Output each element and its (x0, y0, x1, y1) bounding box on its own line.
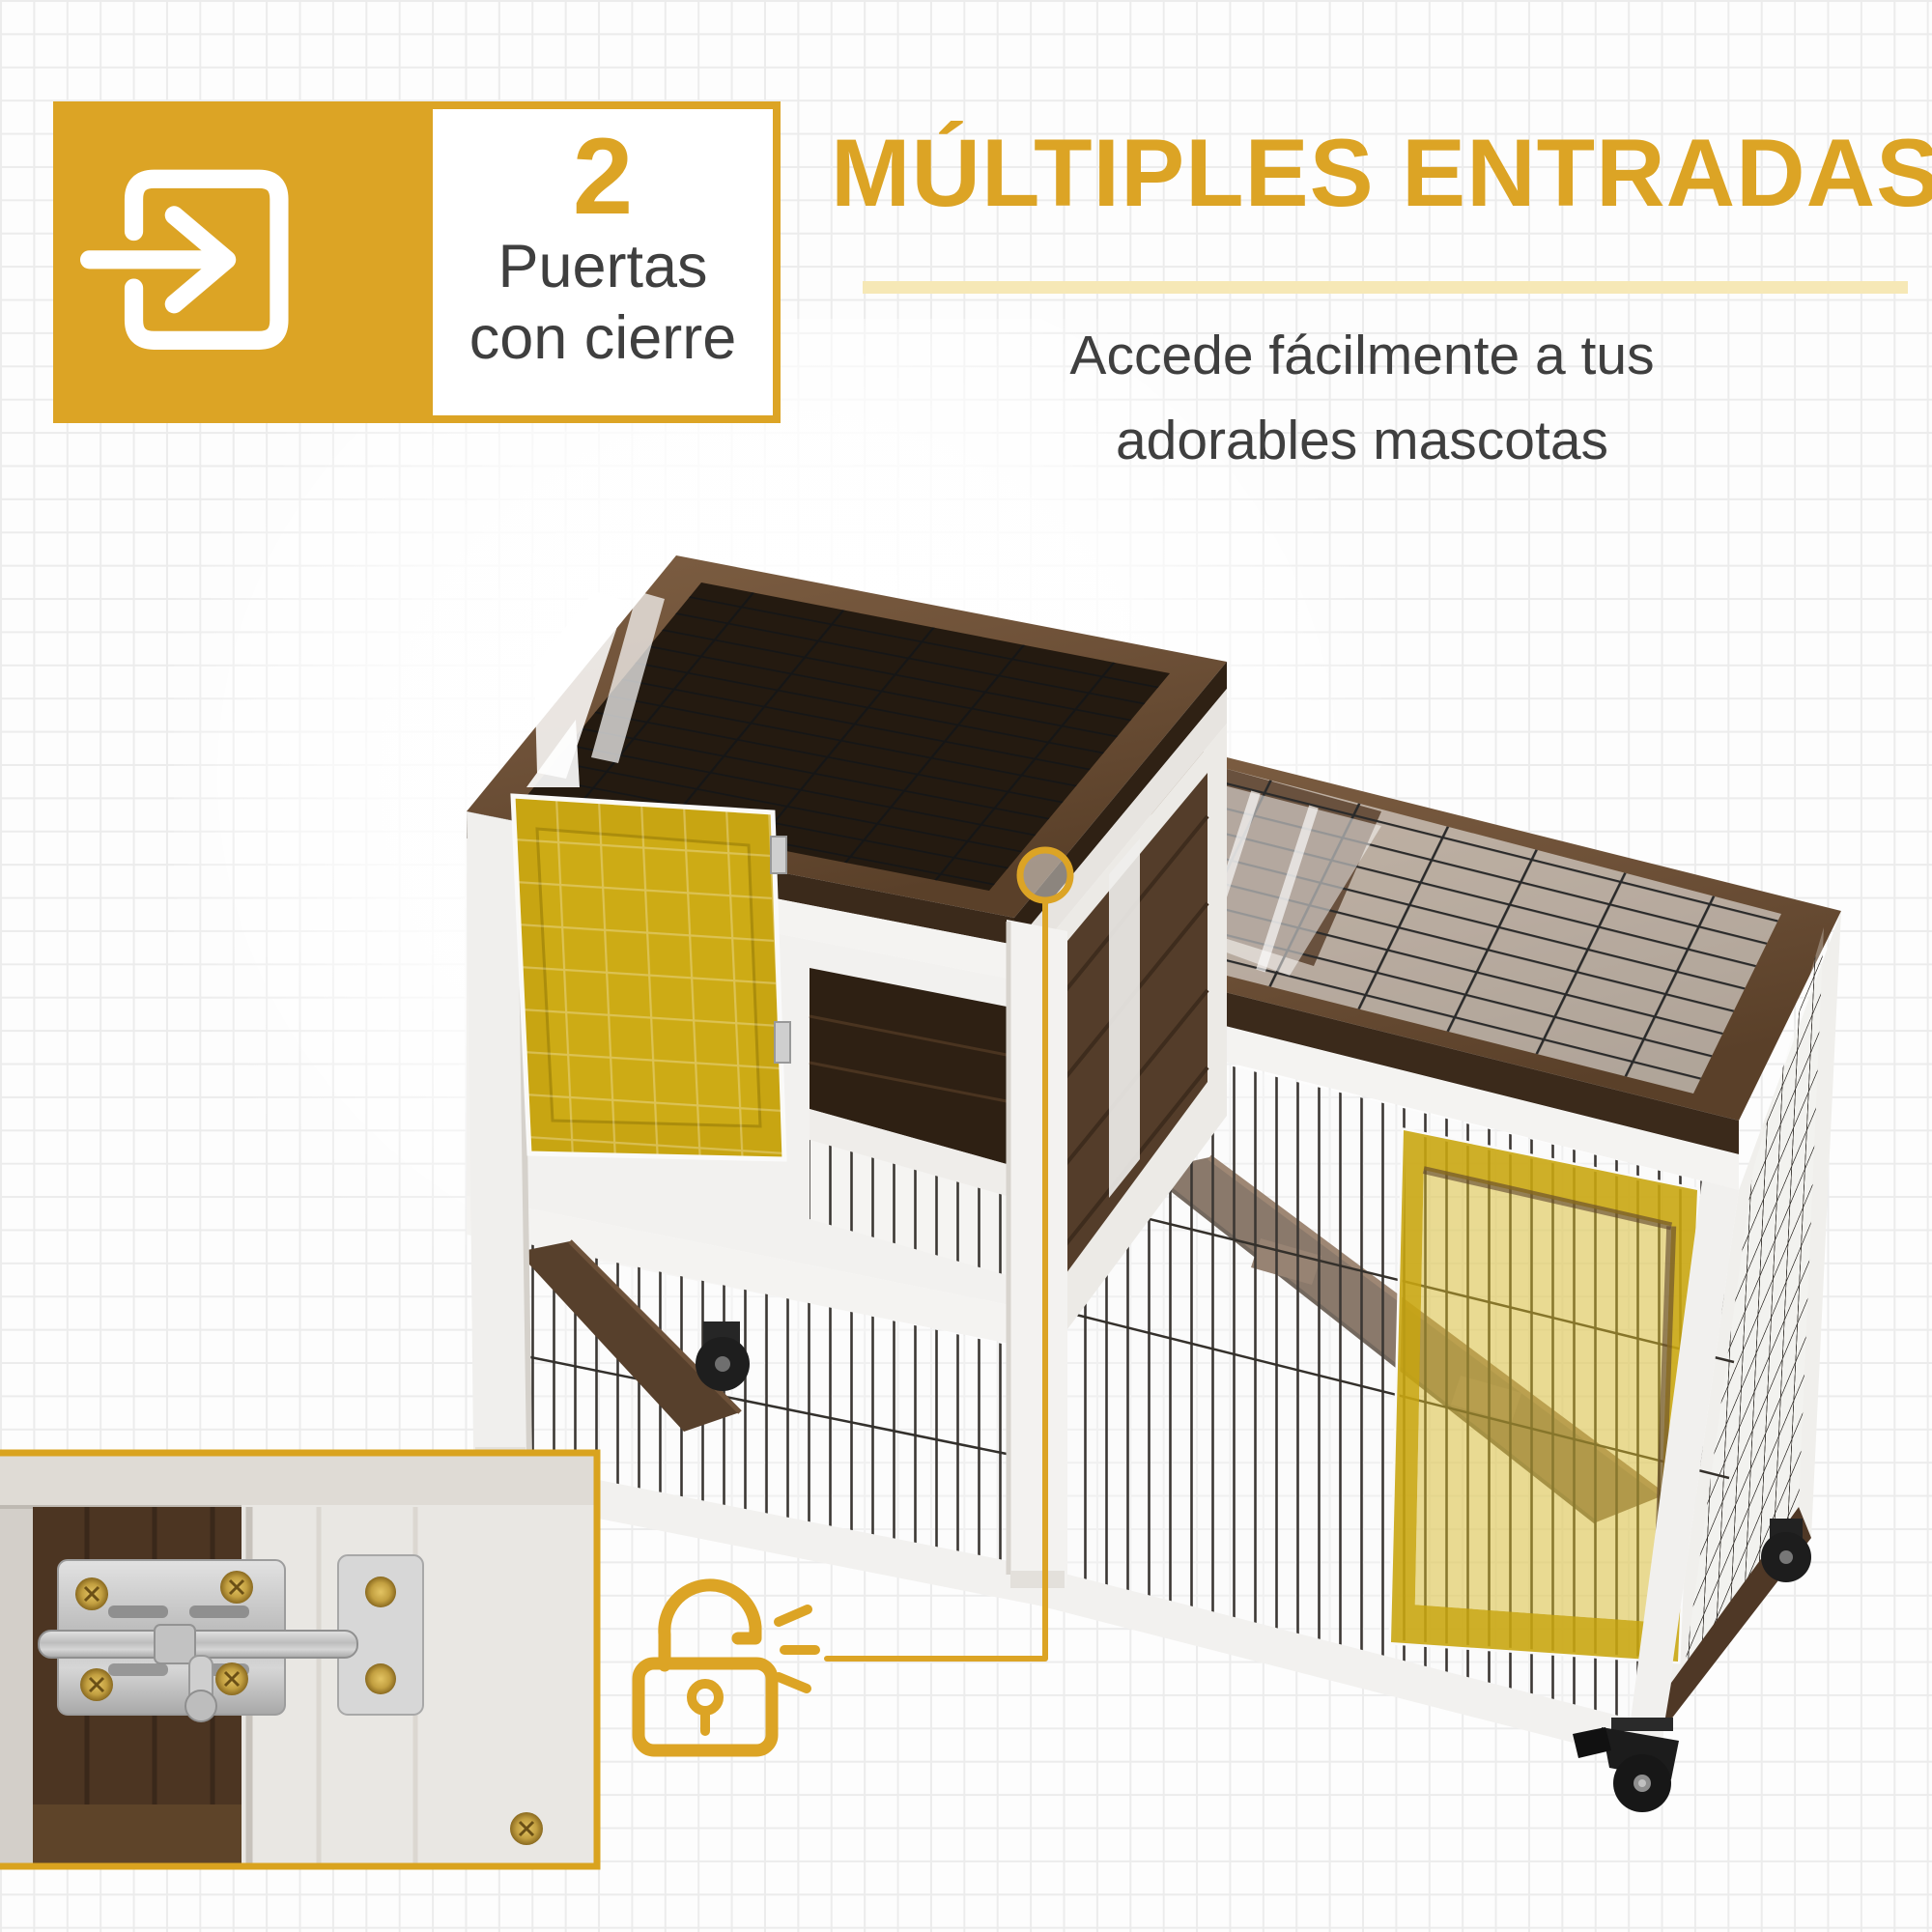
badge-label-line1: Puertas (433, 231, 773, 302)
badge-text-box: 2 Puertas con cierre (425, 101, 781, 423)
subtitle: Accede fácilmente a tus adorables mascot… (869, 313, 1855, 483)
badge-label-line2: con cierre (433, 302, 773, 374)
subtitle-line1: Accede fácilmente a tus (869, 313, 1855, 398)
badge-count: 2 (433, 123, 773, 231)
door-hinge (771, 837, 786, 873)
product-feature-graphic: 2 Puertas con cierre MÚLTIPLES ENTRADAS … (0, 0, 1932, 1932)
door-exit-arrow-icon (53, 101, 372, 372)
door-highlight-left (513, 796, 790, 1159)
latch-zoom-inset (0, 1453, 597, 1867)
badge-icon-box (53, 101, 425, 423)
title-underline-bar (863, 281, 1908, 294)
open-padlock-icon (639, 1585, 772, 1750)
latch-highlight-ring (1020, 850, 1070, 900)
page-title: MÚLTIPLES ENTRADAS (831, 118, 1903, 228)
latch-bolt-rod (39, 1631, 357, 1658)
click-emphasis-marks (779, 1609, 815, 1689)
center-post (1007, 920, 1067, 1586)
subtitle-line2: adorables mascotas (869, 398, 1855, 483)
door-hinge (775, 1022, 790, 1063)
